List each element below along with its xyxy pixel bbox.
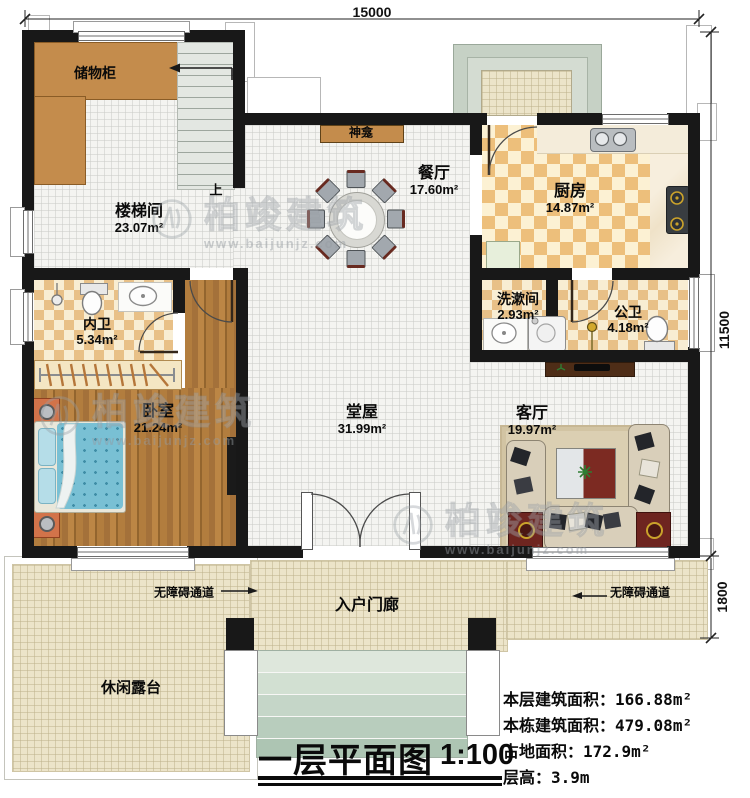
sofa-cushion <box>603 512 621 530</box>
entry-door-leaf <box>409 492 421 550</box>
room-area: 17.60m² <box>410 183 458 198</box>
bed-pillow <box>38 428 56 466</box>
side-table-lamp <box>518 522 535 539</box>
wall-segment <box>22 268 190 280</box>
stat-footprint: 占地面积：172.9m² <box>503 738 650 762</box>
ramp-label-right: 无障碍通道 <box>610 586 670 599</box>
room-name: 堂屋 <box>338 404 386 422</box>
window <box>532 547 669 558</box>
kitchen-sink <box>590 128 636 152</box>
room-name: 洗漱间 <box>497 292 539 308</box>
wall-segment <box>187 546 303 558</box>
window <box>602 114 669 125</box>
stat-floor-area: 本层建筑面积：166.88m² <box>503 686 692 710</box>
dining-chair <box>347 170 366 188</box>
dining-table-top <box>337 200 377 240</box>
room-name: 卧室 <box>134 403 182 421</box>
window-sill <box>526 558 675 571</box>
sofa-cushion <box>549 513 567 530</box>
stairs <box>177 42 235 190</box>
dim-top-text: 15000 <box>353 4 392 20</box>
wall-segment <box>546 280 558 316</box>
room-label-public-wc: 公卫 4.18m² <box>607 305 648 335</box>
room-label-kitchen: 厨房 14.87m² <box>546 183 594 215</box>
room-label-shrine: 神龛 <box>349 126 373 139</box>
wall-segment <box>688 125 700 277</box>
coffee-table <box>556 448 616 499</box>
eave-outline <box>247 77 321 116</box>
stat-value: 479.08m² <box>615 716 692 735</box>
dim-porch-text: 1800 <box>714 581 730 612</box>
ramp-text: 无障碍通道 <box>154 586 214 599</box>
room-name: 餐厅 <box>410 165 458 183</box>
room-name: 公卫 <box>607 305 648 321</box>
stat-label: 本栋建筑面积： <box>503 718 615 735</box>
back-steps-inner <box>481 70 572 116</box>
stat-value: 172.9m² <box>583 742 650 761</box>
wall-segment <box>667 113 700 125</box>
window-sill <box>699 274 715 352</box>
room-name: 客厅 <box>508 405 556 423</box>
wall-segment <box>470 113 482 155</box>
dining-chair <box>387 210 405 229</box>
wall-segment <box>22 546 77 558</box>
room-name: 入户门廊 <box>335 597 399 615</box>
ramp-path-floor <box>506 560 708 640</box>
stairs-up-text: 上 <box>209 184 222 199</box>
nightstand-knob <box>39 404 55 420</box>
wardrobe <box>34 360 182 390</box>
tv <box>574 364 610 371</box>
room-label-dining: 餐厅 17.60m² <box>410 165 458 197</box>
title-underline <box>258 783 502 786</box>
room-area: 31.99m² <box>338 422 386 437</box>
stove <box>666 186 690 234</box>
floor-plan: 储物柜 楼梯间 23.07m² 神龛 餐厅 17.60m² 厨房 14.87m²… <box>0 0 750 798</box>
wall-segment <box>612 268 700 280</box>
room-area: 2.93m² <box>497 308 539 323</box>
wall-segment <box>233 42 245 188</box>
sofa-cushion <box>585 513 604 531</box>
stat-label: 占地面积： <box>503 744 583 761</box>
room-label-hall: 堂屋 31.99m² <box>338 404 386 436</box>
window-sill <box>71 558 195 571</box>
room-label-ensuite-wc: 内卫 5.34m² <box>76 317 117 347</box>
room-label-washroom: 洗漱间 2.93m² <box>497 292 539 322</box>
wall-segment <box>236 268 248 546</box>
room-area: 4.18m² <box>607 321 648 336</box>
room-label-terrace: 休闲露台 <box>101 681 161 698</box>
bed-pillow <box>38 468 56 504</box>
stat-value: 3.9m <box>551 768 590 787</box>
wall-segment <box>420 546 532 558</box>
room-name: 神龛 <box>349 126 373 139</box>
wall-segment <box>245 113 487 125</box>
terrace-floor <box>12 564 250 772</box>
wall-segment <box>470 350 700 362</box>
storage-cabinet <box>34 96 86 185</box>
room-name: 储物柜 <box>74 66 116 82</box>
washroom-vanity <box>483 318 528 352</box>
entry-door-leaf <box>301 492 313 550</box>
room-label-stairwell: 楼梯间 23.07m² <box>115 203 163 235</box>
bed-quilt <box>57 423 123 509</box>
wall-segment <box>470 268 572 280</box>
porch-pillar <box>468 618 496 650</box>
room-name: 楼梯间 <box>115 203 163 221</box>
sofa-cushion <box>567 512 587 531</box>
stat-storey-height: 层高：3.9m <box>503 764 590 788</box>
room-area: 14.87m² <box>546 201 594 216</box>
bedroom-tv <box>227 437 236 495</box>
room-name: 厨房 <box>546 183 594 201</box>
porch-column <box>224 650 258 736</box>
porch-pillar <box>226 618 254 650</box>
wall-segment <box>470 235 482 362</box>
room-label-living: 客厅 19.97m² <box>508 405 556 437</box>
room-area: 23.07m² <box>115 221 163 236</box>
window <box>689 277 700 349</box>
window <box>23 292 34 342</box>
stat-label: 本层建筑面积： <box>503 692 615 709</box>
side-table-lamp <box>646 522 663 539</box>
window <box>78 31 185 42</box>
room-label-bedroom: 卧室 21.24m² <box>134 403 182 435</box>
side-landing <box>697 103 717 141</box>
title-underline <box>258 776 502 780</box>
wall-segment <box>22 30 34 210</box>
window <box>77 547 189 558</box>
nightstand-knob <box>39 516 55 532</box>
stat-total-area: 本栋建筑面积：479.08m² <box>503 712 692 736</box>
wall-segment <box>667 546 700 558</box>
wall-segment <box>183 30 245 42</box>
ensuite-vanity <box>118 282 172 312</box>
eave-outline <box>686 25 712 115</box>
room-area: 21.24m² <box>134 421 182 436</box>
room-name: 内卫 <box>76 317 117 333</box>
dining-chair <box>307 210 325 229</box>
stat-value: 166.88m² <box>615 690 692 709</box>
wall-segment <box>173 280 185 313</box>
room-label-porch: 入户门廊 <box>335 597 399 615</box>
wall-segment <box>537 113 602 125</box>
dim-right-text: 11500 <box>716 311 732 349</box>
stairs-up-label: 上 <box>209 184 222 199</box>
wall-segment <box>22 340 34 558</box>
window <box>23 210 34 254</box>
wall-segment <box>688 347 700 546</box>
room-label-closet: 储物柜 <box>74 66 116 82</box>
room-area: 5.34m² <box>76 333 117 348</box>
dining-chair <box>347 250 366 268</box>
stat-label: 层高： <box>503 770 551 787</box>
ramp-label-left: 无障碍通道 <box>154 586 214 599</box>
room-area: 19.97m² <box>508 423 556 438</box>
ensuite-toilet-tank <box>80 283 108 295</box>
porch-column <box>466 650 500 736</box>
ramp-text: 无障碍通道 <box>610 586 670 599</box>
sofa-cushion <box>639 458 661 478</box>
room-name: 休闲露台 <box>101 681 161 698</box>
plan-title: 一层平面图 <box>258 733 433 782</box>
